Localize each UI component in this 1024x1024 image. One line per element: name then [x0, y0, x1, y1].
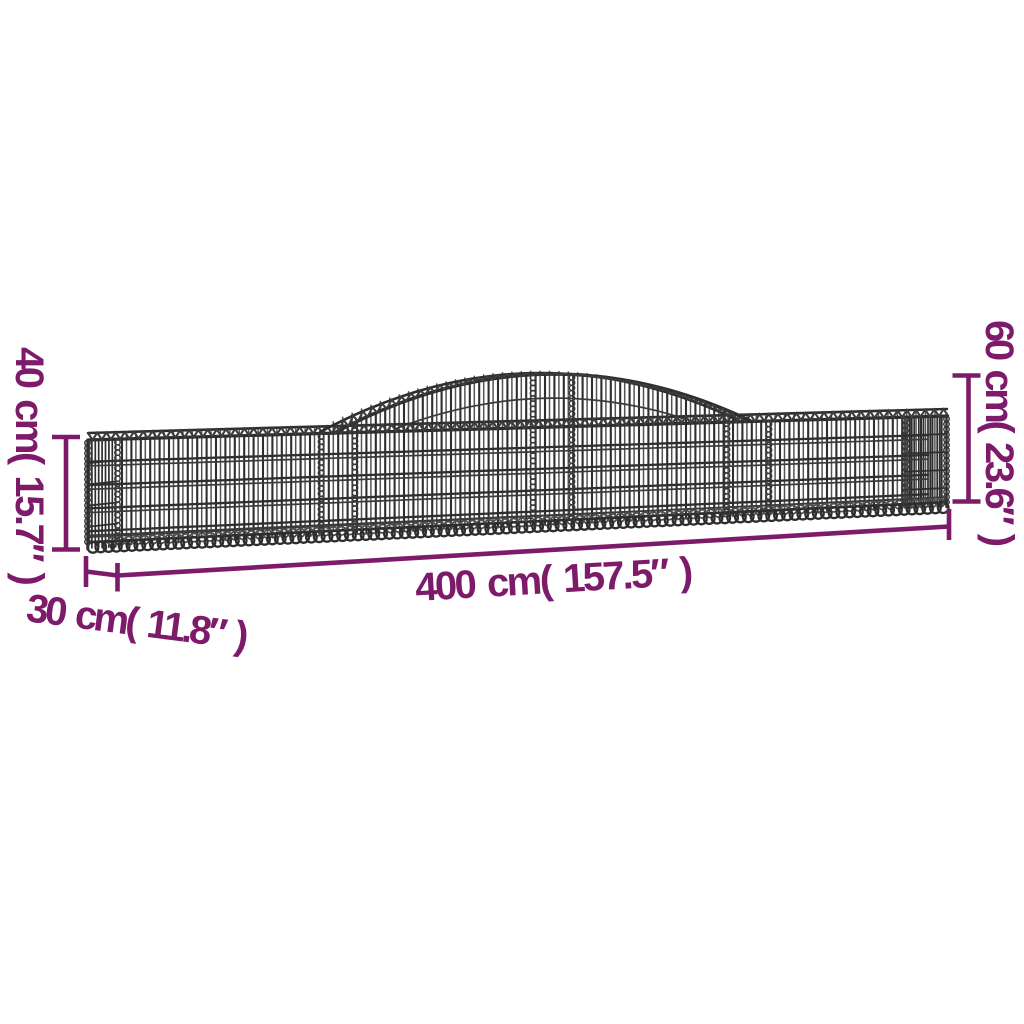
- svg-text:60 cm( 23.6″ ): 60 cm( 23.6″ ): [977, 320, 1021, 546]
- svg-text:40 cm( 15.7″ ): 40 cm( 15.7″ ): [7, 347, 51, 584]
